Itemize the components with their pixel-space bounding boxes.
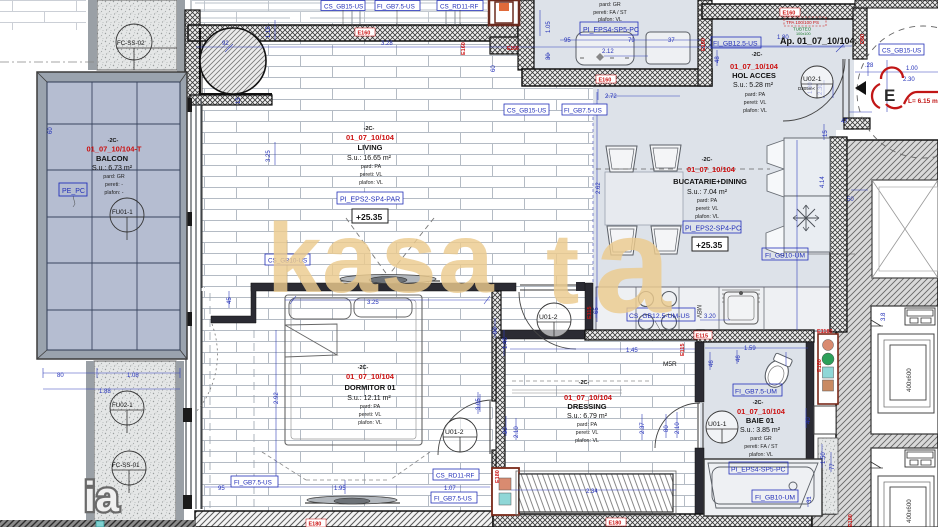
svg-text:FI_GB7.5-US: FI_GB7.5-US [234,480,272,487]
svg-text:plafon: VL: plafon: VL [598,17,622,23]
svg-text:pereti: VL: pereti: VL [360,172,383,178]
svg-text:-2C-: -2C- [702,157,713,163]
svg-text:3.8: 3.8 [881,312,887,321]
svg-text:M5R: M5R [663,361,677,368]
svg-text:-2C-: -2C- [579,380,590,386]
svg-text:FI_GB10-UM: FI_GB10-UM [765,253,805,260]
svg-text:pereti: FA / ST: pereti: FA / ST [593,10,627,16]
svg-text:L= 6.15 m: L= 6.15 m [908,98,938,105]
svg-text:BAIE 01: BAIE 01 [746,416,774,425]
svg-text:60: 60 [491,65,497,72]
svg-text:BUCATARIE+DINING: BUCATARIE+DINING [673,177,747,186]
svg-text:PI_EPS4-SP5-PC: PI_EPS4-SP5-PC [583,27,639,34]
svg-text:1.05: 1.05 [546,21,552,33]
svg-text:2.72: 2.72 [605,94,617,100]
svg-text:46: 46 [736,355,742,362]
svg-text:E1180: E1180 [817,329,833,335]
svg-text:2.30: 2.30 [903,77,915,83]
svg-text:FU01-1: FU01-1 [112,209,133,216]
svg-text:VBM: VBM [695,305,701,318]
svg-text:3.28: 3.28 [381,41,393,47]
svg-text:-2C-: -2C- [364,126,375,132]
svg-text:S.u.: 6.73 m²: S.u.: 6.73 m² [92,165,133,172]
svg-text:a: a [438,202,495,314]
svg-text:15: 15 [823,130,829,137]
svg-text:31: 31 [807,496,813,503]
svg-text:FI_GB12.5-US: FI_GB12.5-US [713,41,758,48]
svg-text:U02-1: U02-1 [803,76,822,83]
svg-text:1.00: 1.00 [906,66,918,72]
svg-text:PI_EPS2-SP4-PC: PI_EPS2-SP4-PC [685,226,741,233]
svg-text:+25.35: +25.35 [696,240,723,250]
svg-text:FI_GB10-UM: FI_GB10-UM [755,495,795,502]
svg-text:s: s [381,202,437,314]
svg-text:01_07_10/104: 01_07_10/104 [346,372,395,381]
svg-text:pereti: VL: pereti: VL [744,100,767,106]
svg-text:46: 46 [709,360,715,367]
svg-text:-2C-: -2C- [108,138,119,144]
svg-text:t: t [546,213,579,325]
svg-text:90: 90 [503,427,509,434]
svg-text:37: 37 [668,38,675,44]
svg-text:pereti: VL: pereti: VL [359,412,382,418]
svg-text:E180: E180 [817,359,823,372]
svg-text:60: 60 [48,127,54,134]
svg-text:pard: GR: pard: GR [103,174,125,180]
svg-text:400x600: 400x600 [906,499,913,523]
svg-text:.28: .28 [865,63,874,69]
svg-text:-2C-: -2C- [753,400,764,406]
svg-text:pard: GR: pard: GR [599,2,621,8]
svg-text:pard: PA: pard: PA [745,92,766,98]
svg-text:01_07_10/104: 01_07_10/104 [687,165,736,174]
svg-text:CS_RD11-RF: CS_RD11-RF [436,473,475,480]
svg-text:U01-1: U01-1 [708,421,727,428]
svg-text:1.59: 1.59 [744,346,756,352]
svg-text:CS_GB15-US: CS_GB15-US [507,108,546,115]
svg-text:30: 30 [546,53,552,60]
svg-text:77: 77 [830,463,836,470]
svg-text:PI_EPS4-SP5-PC: PI_EPS4-SP5-PC [731,467,785,474]
svg-text:45: 45 [227,297,233,304]
svg-text:80: 80 [664,425,670,432]
svg-text:E180: E180 [848,514,854,527]
svg-text:FI_GB7.5-US: FI_GB7.5-US [434,496,472,503]
svg-text:S.u.: 12.11 m²: S.u.: 12.11 m² [347,395,391,402]
svg-text:E160: E160 [701,38,707,51]
svg-text:HOL ACCES: HOL ACCES [732,71,776,80]
svg-text:pard: PA: pard: PA [360,404,381,410]
svg-text:01_07_10/104: 01_07_10/104 [737,407,786,416]
svg-text:40: 40 [806,417,812,424]
svg-text:E180: E180 [309,522,322,528]
svg-text:E160: E160 [461,42,467,55]
svg-text:E115: E115 [696,334,709,340]
svg-text:2.37: 2.37 [640,422,646,434]
svg-text:1.95: 1.95 [334,486,346,492]
svg-text:1.15: 1.15 [266,26,272,38]
svg-text:pard: PA: pard: PA [577,422,598,428]
svg-text:pard: PA: pard: PA [697,198,718,204]
svg-text:E150: E150 [507,46,519,52]
svg-text:47: 47 [841,119,848,125]
svg-text:E160: E160 [358,31,371,37]
svg-text:Ap. 01_07_10/104.: Ap. 01_07_10/104. [780,36,857,46]
svg-text:80: 80 [57,373,64,379]
svg-text:S.u.: 7.04 m²: S.u.: 7.04 m² [687,189,728,196]
svg-text:plafon: VL: plafon: VL [358,420,382,426]
svg-text:E: E [884,86,895,105]
svg-text:plafon: -: plafon: - [104,190,123,196]
svg-text:FI_GB7.5-US: FI_GB7.5-US [564,108,602,115]
svg-text:90: 90 [493,327,499,334]
svg-text:3.25: 3.25 [266,150,272,162]
svg-text:92: 92 [222,41,229,47]
svg-text:15: 15 [236,97,242,104]
svg-text:pereti: VL: pereti: VL [696,206,719,212]
svg-text:TUBTEO: TUBTEO [793,27,812,32]
svg-text:1.45: 1.45 [626,348,638,354]
svg-text:1.07: 1.07 [444,486,456,492]
svg-text:pard: GR: pard: GR [750,436,772,442]
svg-text:pereti: -: pereti: - [105,182,123,188]
svg-text:FC-SS-01: FC-SS-01 [112,462,140,469]
svg-text:2.34: 2.34 [586,489,598,495]
svg-text:S.u.: 3.85 m²: S.u.: 3.85 m² [740,427,781,434]
svg-text:LIVING: LIVING [357,143,382,152]
svg-text:01_07_10/104: 01_07_10/104 [346,133,395,142]
svg-text:FI_GB7.5-US: FI_GB7.5-US [377,4,415,11]
svg-text:CS_RD11-RF: CS_RD11-RF [440,4,479,11]
svg-text:U01-2: U01-2 [445,429,464,436]
svg-text:1.08: 1.08 [127,373,139,379]
svg-text:79: 79 [628,38,635,44]
svg-text:TPA 100/100 PS: TPA 100/100 PS [786,20,819,25]
svg-text:pereti: FA / ST: pereti: FA / ST [744,444,778,450]
svg-text:E180: E180 [495,470,501,483]
svg-text:95: 95 [218,486,225,492]
svg-text:4.14: 4.14 [820,176,826,188]
svg-text:DORMITOR 01: DORMITOR 01 [344,383,395,392]
svg-text:95: 95 [564,38,571,44]
svg-text:BALCON: BALCON [96,154,128,163]
svg-text:E115: E115 [587,306,593,319]
svg-text:plafon: VL: plafon: VL [749,452,773,458]
svg-text:S.u.: 6.79 m²: S.u.: 6.79 m² [567,413,608,420]
svg-text:01_07_10/104-T: 01_07_10/104-T [86,145,141,154]
svg-text:D60: D60 [860,34,866,44]
svg-text:ia: ia [84,473,120,520]
svg-text:1.45: 1.45 [503,337,509,349]
svg-text:CS_GB15-US: CS_GB15-US [882,48,921,55]
svg-text:plafon: VL: plafon: VL [575,438,599,444]
svg-text:k: k [267,203,322,313]
svg-text:a: a [322,202,379,314]
svg-text:E115: E115 [680,343,686,356]
svg-text:2.10: 2.10 [514,426,520,438]
svg-text:48: 48 [715,56,721,63]
svg-text:PE_PC: PE_PC [62,188,85,195]
svg-text:plafon: VL: plafon: VL [359,180,383,186]
svg-text:E160: E160 [599,78,612,84]
svg-text:D305m<: D305m< [798,86,816,91]
svg-text:2.12: 2.12 [602,49,614,55]
svg-text:plafon: VL: plafon: VL [743,108,767,114]
svg-text:S.u.: 16.65 m²: S.u.: 16.65 m² [347,155,392,162]
svg-text:1.50: 1.50 [821,452,827,464]
svg-text:pard: PA: pard: PA [361,164,382,170]
svg-text:01_07_10/104: 01_07_10/104 [564,393,613,402]
svg-text:1.88: 1.88 [99,389,111,395]
svg-text:FC-SS-02: FC-SS-02 [117,40,145,47]
svg-text:3.20: 3.20 [704,314,716,320]
svg-text:01_07_10/104: 01_07_10/104 [730,62,779,71]
svg-text:2.92: 2.92 [274,392,280,404]
svg-text:CS_GB15-US: CS_GB15-US [324,4,363,11]
svg-text:pereti: VL: pereti: VL [576,430,599,436]
svg-text:S.u.: 5.28 m²: S.u.: 5.28 m² [733,82,774,89]
svg-text:400x600: 400x600 [906,368,913,392]
svg-text:plafon: VL: plafon: VL [695,214,719,220]
svg-text:E160: E160 [783,11,796,17]
svg-text:FI_GB7.5-UM: FI_GB7.5-UM [735,389,777,396]
svg-text:FU02-1: FU02-1 [112,402,133,409]
svg-text:50: 50 [847,197,854,203]
svg-text:3.05: 3.05 [476,398,482,410]
svg-text:a: a [594,188,672,342]
svg-text:DRESSING: DRESSING [567,402,606,411]
svg-text:E180: E180 [609,521,622,527]
svg-text:2.10: 2.10 [675,422,681,434]
svg-text:-2C-: -2C- [752,52,763,58]
svg-text:-2C-: -2C- [358,365,369,371]
